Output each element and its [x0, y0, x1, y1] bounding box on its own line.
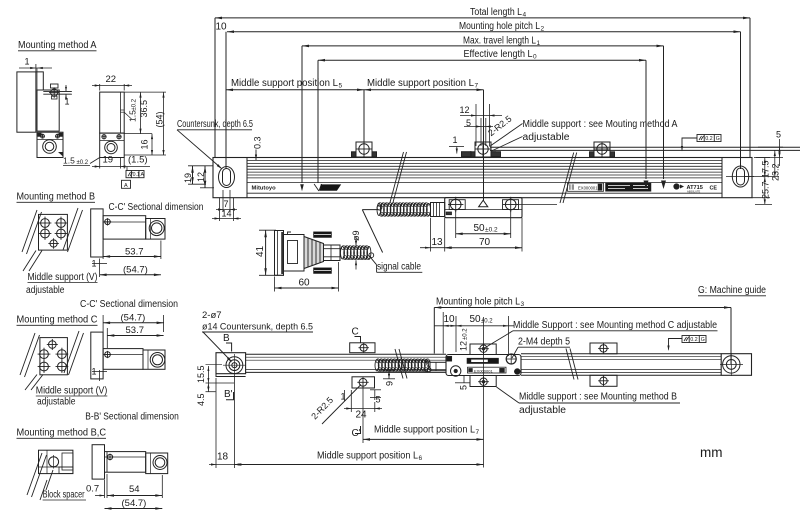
svg-text:2-M4 depth 5: 2-M4 depth 5	[518, 337, 570, 348]
svg-text:±0.2: ±0.2	[485, 227, 498, 234]
svg-text:Middle support (V): Middle support (V)	[28, 272, 98, 283]
svg-text:7: 7	[224, 199, 229, 209]
svg-text:17.5: 17.5	[761, 160, 771, 178]
svg-text:Mounting method C: Mounting method C	[17, 315, 98, 326]
svg-text:Mounting method B: Mounting method B	[17, 192, 96, 203]
svg-text:70: 70	[479, 237, 491, 248]
svg-text:16: 16	[140, 139, 150, 149]
svg-text:60: 60	[299, 278, 311, 289]
svg-text:5: 5	[339, 83, 343, 90]
svg-text:C-C' Sectional dimension: C-C' Sectional dimension	[109, 202, 204, 213]
svg-text:5: 5	[776, 130, 781, 140]
svg-text:Middle support : see Mounting: Middle support : see Mounting method B	[519, 392, 677, 403]
svg-text:Middle support position L: Middle support position L	[374, 425, 475, 436]
svg-text:5: 5	[459, 385, 469, 390]
svg-text:22: 22	[106, 74, 117, 85]
svg-text:0.7: 0.7	[86, 484, 99, 495]
svg-text:Block spacer: Block spacer	[43, 490, 85, 501]
svg-text:3: 3	[521, 301, 525, 308]
svg-text:ABS0LUTE: ABS0LUTE	[687, 190, 701, 194]
svg-text:adjustable: adjustable	[523, 132, 570, 143]
svg-text:5: 5	[466, 118, 471, 128]
svg-text:53.7: 53.7	[125, 247, 144, 258]
svg-text:1.5: 1.5	[63, 156, 75, 166]
svg-text:19: 19	[183, 173, 193, 183]
svg-text:(54): (54)	[155, 111, 165, 127]
svg-text:B': B'	[224, 389, 233, 400]
svg-text:14: 14	[222, 209, 232, 219]
svg-text:C-C' Sectional dimension: C-C' Sectional dimension	[80, 299, 178, 310]
svg-text:Middle support (V): Middle support (V)	[36, 386, 108, 397]
svg-text:0: 0	[533, 54, 537, 61]
svg-text:54: 54	[129, 484, 140, 495]
svg-text:Middle support : see Mouting m: Middle support : see Mouting method A	[523, 119, 678, 130]
svg-text:18: 18	[217, 452, 229, 463]
svg-text:(54.7): (54.7)	[122, 498, 147, 509]
svg-text:Mounting method B,C: Mounting method B,C	[17, 428, 107, 439]
svg-text:Middle support position L: Middle support position L	[317, 451, 418, 462]
svg-text:0.2: 0.2	[705, 136, 712, 142]
svg-text:(54.7): (54.7)	[121, 313, 146, 324]
svg-text:50: 50	[474, 223, 486, 234]
svg-text:1.5: 1.5	[128, 110, 138, 122]
svg-text:B-B' Sectional dimension: B-B' Sectional dimension	[85, 412, 179, 423]
svg-text:0.1: 0.1	[133, 172, 140, 178]
svg-text:Middle Support : see Mounting: Middle Support : see Mounting method C a…	[513, 320, 717, 331]
svg-text:7: 7	[476, 429, 480, 436]
svg-text:7: 7	[475, 83, 479, 90]
svg-text:2: 2	[541, 26, 545, 33]
svg-text:A: A	[124, 183, 128, 189]
svg-text:C: C	[352, 327, 359, 338]
svg-text:25.7: 25.7	[761, 181, 771, 199]
svg-text:Middle support position L: Middle support position L	[231, 78, 338, 89]
svg-text:adjustable: adjustable	[26, 285, 65, 296]
svg-text:Mounting hole pitch L: Mounting hole pitch L	[459, 21, 540, 32]
svg-text:adjustable: adjustable	[37, 397, 76, 408]
svg-text:5: 5	[376, 395, 381, 405]
svg-text:Effective length L: Effective length L	[464, 49, 533, 60]
svg-text:0.3: 0.3	[253, 136, 263, 149]
svg-text:±0.2: ±0.2	[132, 98, 138, 110]
svg-text:12: 12	[460, 105, 470, 115]
svg-text:4.5: 4.5	[196, 393, 206, 406]
svg-text:0.2: 0.2	[690, 337, 697, 343]
svg-text:G: Machine guide: G: Machine guide	[698, 285, 766, 296]
svg-text:15.5: 15.5	[196, 365, 206, 383]
svg-text:10: 10	[444, 314, 456, 325]
svg-text:9: 9	[385, 381, 395, 386]
svg-text:24: 24	[356, 410, 368, 421]
svg-text:CE: CE	[710, 186, 718, 192]
svg-text:1: 1	[453, 135, 458, 145]
svg-text:G: G	[716, 136, 720, 142]
svg-text:mm: mm	[700, 445, 723, 460]
svg-text:Mounting hole pitch L: Mounting hole pitch L	[436, 297, 520, 308]
svg-text:B: B	[223, 333, 230, 344]
svg-text:Countersunk, depth 6.5: Countersunk, depth 6.5	[177, 119, 253, 130]
svg-text:(54.7): (54.7)	[123, 265, 148, 276]
svg-text:4: 4	[523, 12, 527, 19]
svg-text:G: G	[701, 337, 705, 343]
svg-text:12: 12	[196, 172, 206, 182]
svg-text:Mitutoyo: Mitutoyo	[252, 186, 277, 192]
svg-text:13: 13	[432, 237, 444, 248]
svg-text:A: A	[140, 172, 144, 178]
svg-text:2-ø7: 2-ø7	[202, 310, 222, 321]
svg-text:±0.2: ±0.2	[481, 319, 493, 325]
svg-text:ø14 Countersunk, depth 6.5: ø14 Countersunk, depth 6.5	[202, 322, 313, 333]
svg-text:Max. travel length L: Max. travel length L	[463, 36, 536, 47]
svg-text:1: 1	[537, 40, 541, 47]
svg-text:Total length L: Total length L	[470, 7, 522, 18]
svg-text:1: 1	[25, 57, 30, 67]
svg-text:EX000001: EX000001	[578, 185, 598, 190]
svg-text:10: 10	[216, 21, 228, 32]
svg-text:±0.2: ±0.2	[463, 328, 469, 340]
svg-text:41: 41	[255, 245, 266, 257]
svg-text:Mounting method A: Mounting method A	[18, 40, 97, 51]
svg-text:signal cable: signal cable	[377, 262, 421, 273]
svg-text:6: 6	[419, 455, 423, 462]
svg-text:Middle support position L: Middle support position L	[367, 78, 474, 89]
svg-text:50: 50	[470, 314, 482, 325]
svg-text:(1.5): (1.5)	[128, 155, 148, 166]
svg-text:12: 12	[459, 341, 469, 351]
svg-text:53.7: 53.7	[126, 325, 145, 336]
svg-text:19: 19	[103, 155, 114, 166]
svg-text:adjustable: adjustable	[519, 405, 566, 416]
